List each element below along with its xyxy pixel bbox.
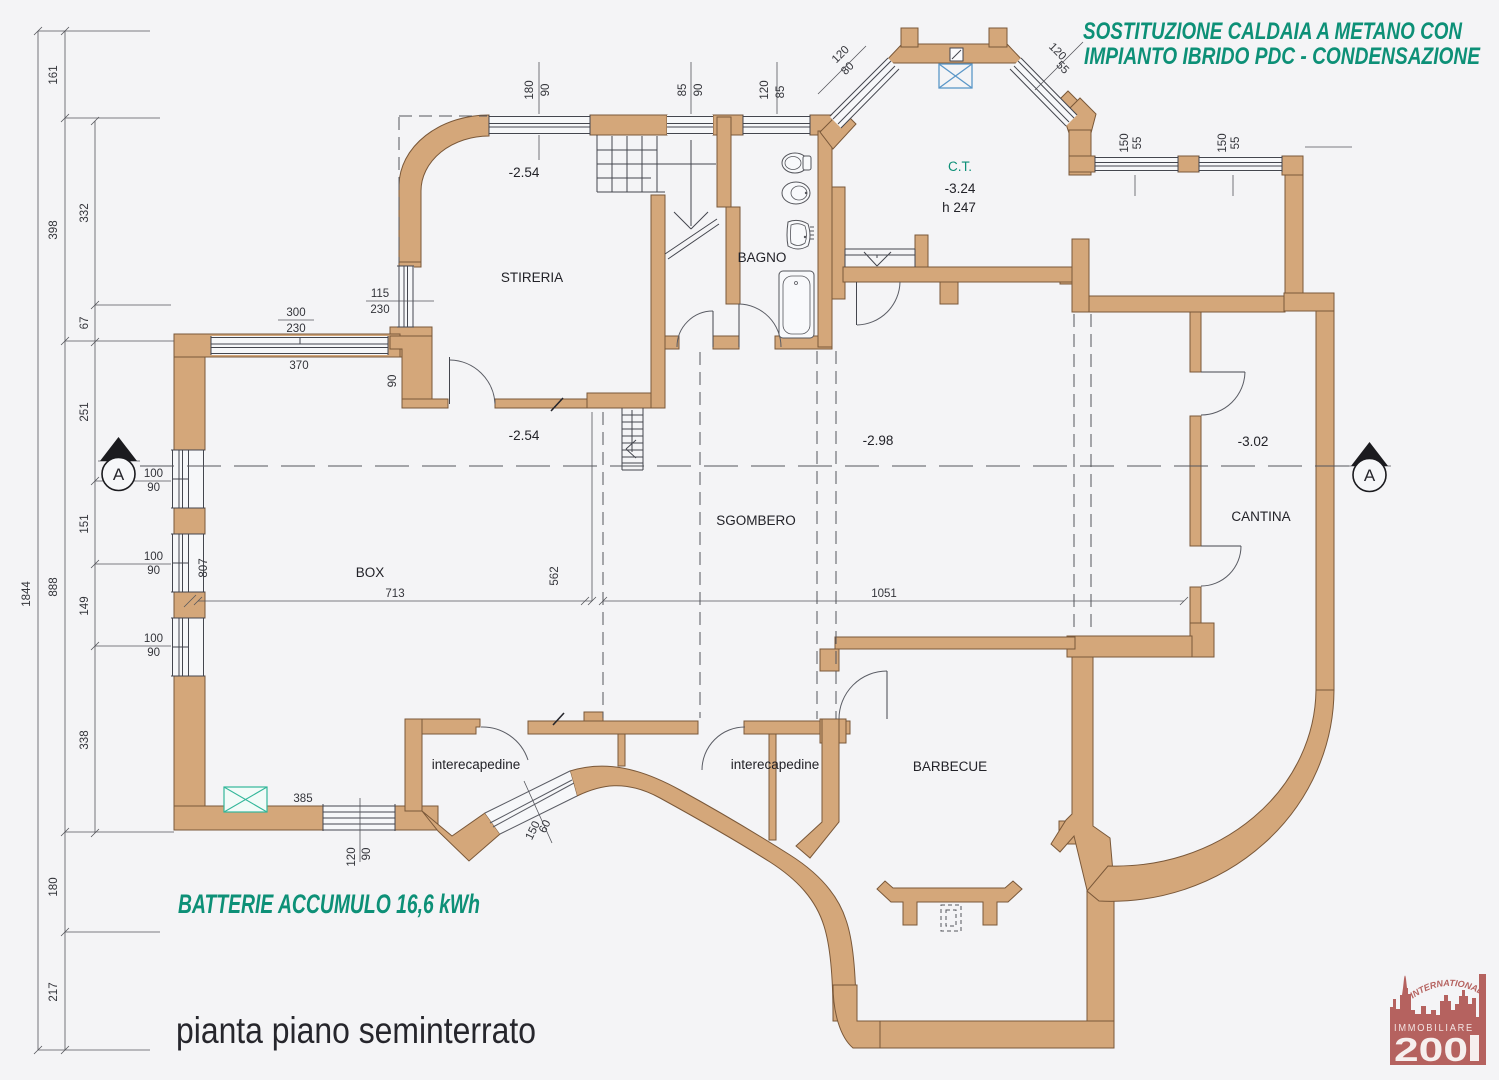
svg-text:338: 338 xyxy=(79,730,91,749)
svg-text:115: 115 xyxy=(371,288,389,300)
svg-text:CANTINA: CANTINA xyxy=(1231,509,1290,524)
svg-text:230: 230 xyxy=(286,323,305,335)
svg-text:90: 90 xyxy=(387,375,399,388)
svg-text:BOX: BOX xyxy=(356,565,385,580)
svg-text:120: 120 xyxy=(759,80,771,99)
svg-text:BATTERIE ACCUMULO 16,6 kWh: BATTERIE ACCUMULO 16,6 kWh xyxy=(178,889,480,919)
svg-text:-2.98: -2.98 xyxy=(863,433,894,448)
svg-text:90: 90 xyxy=(540,84,552,97)
svg-text:STIRERIA: STIRERIA xyxy=(501,270,563,285)
svg-text:120: 120 xyxy=(346,847,358,866)
svg-text:C.T.: C.T. xyxy=(948,159,972,174)
svg-text:h 247: h 247 xyxy=(942,200,976,215)
svg-text:180: 180 xyxy=(48,877,60,896)
svg-text:A: A xyxy=(1364,466,1376,485)
svg-text:100: 100 xyxy=(144,551,163,563)
svg-text:A: A xyxy=(113,465,125,484)
svg-text:55: 55 xyxy=(1230,137,1242,150)
svg-text:100: 100 xyxy=(144,468,163,480)
svg-text:151: 151 xyxy=(79,514,91,533)
svg-text:385: 385 xyxy=(293,793,312,805)
svg-text:BAGNO: BAGNO xyxy=(738,250,787,265)
svg-text:150: 150 xyxy=(1119,133,1131,152)
svg-text:807: 807 xyxy=(198,558,210,577)
svg-text:interecapedine: interecapedine xyxy=(731,757,820,772)
svg-text:BARBECUE: BARBECUE xyxy=(913,759,987,774)
svg-text:398: 398 xyxy=(48,220,60,239)
svg-text:150: 150 xyxy=(1217,133,1229,152)
svg-text:55: 55 xyxy=(1132,137,1144,150)
svg-text:230: 230 xyxy=(370,304,389,316)
svg-text:-3.02: -3.02 xyxy=(1238,434,1269,449)
svg-text:90: 90 xyxy=(147,647,160,659)
svg-text:562: 562 xyxy=(549,566,561,585)
svg-text:-3.24: -3.24 xyxy=(945,181,976,196)
svg-text:pianta piano seminterrato: pianta piano seminterrato xyxy=(176,1010,536,1051)
svg-text:713: 713 xyxy=(385,588,404,600)
svg-text:332: 332 xyxy=(79,203,91,222)
svg-text:90: 90 xyxy=(361,848,373,861)
svg-text:100: 100 xyxy=(144,633,163,645)
svg-text:90: 90 xyxy=(147,482,160,494)
svg-text:85: 85 xyxy=(677,84,689,97)
svg-text:180: 180 xyxy=(524,80,536,99)
svg-text:1844: 1844 xyxy=(21,581,33,607)
svg-text:-2.54: -2.54 xyxy=(509,165,540,180)
svg-text:interecapedine: interecapedine xyxy=(432,757,521,772)
svg-text:IMPIANTO IBRIDO PDC - CONDENS: IMPIANTO IBRIDO PDC - CONDENSAZIONE xyxy=(1084,43,1481,70)
svg-text:SGOMBERO: SGOMBERO xyxy=(716,513,796,528)
svg-text:SOSTITUZIONE CALDAIA A METANO: SOSTITUZIONE CALDAIA A METANO CON xyxy=(1083,18,1463,45)
svg-text:251: 251 xyxy=(79,402,91,421)
svg-text:1051: 1051 xyxy=(871,588,897,600)
svg-text:217: 217 xyxy=(48,982,60,1001)
svg-text:300: 300 xyxy=(286,307,305,319)
svg-text:200: 200 xyxy=(1394,1031,1468,1068)
svg-text:90: 90 xyxy=(147,565,160,577)
svg-text:888: 888 xyxy=(48,577,60,596)
svg-text:161: 161 xyxy=(48,65,60,84)
svg-text:-2.54: -2.54 xyxy=(509,428,540,443)
svg-text:67: 67 xyxy=(79,317,91,330)
svg-text:149: 149 xyxy=(79,596,91,615)
svg-text:370: 370 xyxy=(289,360,308,372)
svg-text:90: 90 xyxy=(693,84,705,97)
